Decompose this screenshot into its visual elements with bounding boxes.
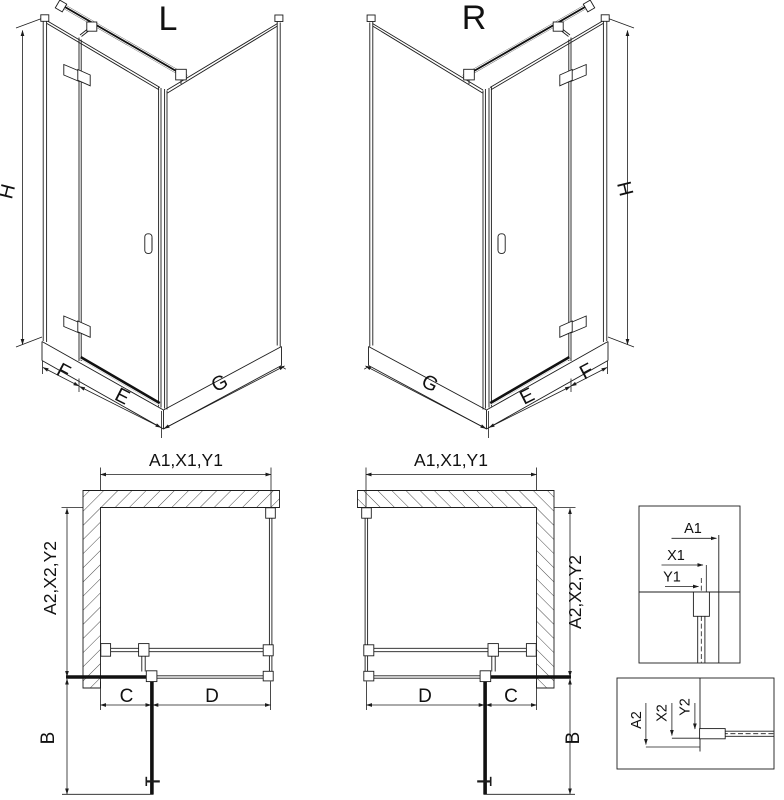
dim-clearance-right: B [563,732,584,745]
dim-return-left: G [208,370,232,397]
detail-dim-y1: Y1 [663,570,681,586]
dim-height-left: H [0,182,20,201]
detail-dim-y2: Y2 [678,698,694,716]
dim-return-right: G [418,370,442,397]
dim-depth-right: A2,X2,Y2 [565,555,585,629]
detail-dim-a1: A1 [684,521,702,537]
drawing-page: L H F E G R H F E G A1,X1,Y1 A2,X2,Y2 B … [0,0,784,800]
dim-side-right: F [576,359,597,384]
technical-drawing: L H F E G R H F E G A1,X1,Y1 A2,X2,Y2 B … [0,0,784,800]
dim-opening-left: A1,X1,Y1 [149,450,223,470]
dim-front-right: E [516,384,538,410]
detail-dim-x1: X1 [667,548,685,564]
plan-view-right [358,468,576,795]
dim-opening-right: A1,X1,Y1 [414,450,488,470]
dim-side-left: F [53,359,74,384]
dim-door-left: D [205,686,219,707]
detail-dim-x2: X2 [655,704,671,722]
dim-fixed-left: C [120,686,134,707]
variant-label-left: L [159,0,178,38]
detail-dim-a2: A2 [629,711,645,729]
dim-height-right: H [614,179,639,198]
dim-fixed-right: C [504,686,518,707]
variant-label-right: R [462,0,487,37]
dim-depth-left: A2,X2,Y2 [40,541,60,615]
dim-clearance-left: B [38,732,59,745]
plan-view-left [62,468,280,795]
dim-front-left: E [111,384,133,410]
dim-door-right: D [418,686,432,707]
